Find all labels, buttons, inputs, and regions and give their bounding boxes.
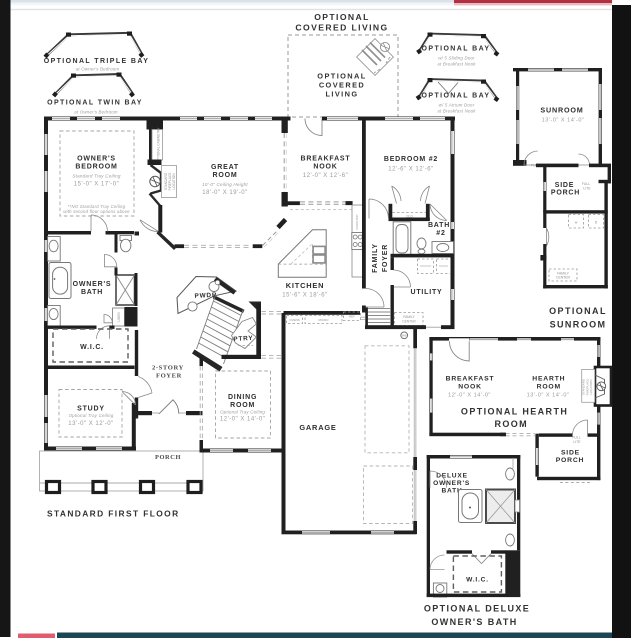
svg-text:BEDROOM: BEDROOM bbox=[75, 164, 117, 171]
svg-text:BREAKFAST: BREAKFAST bbox=[446, 376, 495, 383]
svg-text:with second floor options abov: with second floor options above bbox=[63, 209, 130, 214]
svg-text:OPTIONAL TWIN BAY: OPTIONAL TWIN BAY bbox=[47, 100, 143, 107]
svg-text:OWNER'S: OWNER'S bbox=[77, 156, 116, 163]
svg-text:COOKTOP: COOKTOP bbox=[355, 215, 359, 230]
svg-text:COVERED LIVING: COVERED LIVING bbox=[295, 23, 388, 33]
svg-text:OPTIONAL DELUXE: OPTIONAL DELUXE bbox=[424, 604, 530, 614]
svg-text:Optional Tray Ceiling: Optional Tray Ceiling bbox=[220, 410, 265, 415]
svg-text:18'-0" X 19'-0": 18'-0" X 19'-0" bbox=[202, 190, 247, 196]
svg-text:FOYER: FOYER bbox=[156, 373, 182, 380]
svg-text:10'-0" Ceiling Height: 10'-0" Ceiling Height bbox=[202, 182, 248, 187]
svg-text:2-STORY: 2-STORY bbox=[152, 365, 184, 372]
svg-text:GREAT: GREAT bbox=[211, 164, 239, 171]
svg-text:OPTIONAL HEARTH: OPTIONAL HEARTH bbox=[461, 407, 568, 417]
svg-text:OWNER'S: OWNER'S bbox=[433, 480, 470, 487]
svg-text:LOCATION: LOCATION bbox=[172, 173, 176, 190]
svg-text:REF: REF bbox=[349, 314, 355, 318]
svg-text:DELUXE: DELUXE bbox=[436, 473, 468, 480]
svg-text:BEDROOM #2: BEDROOM #2 bbox=[384, 156, 438, 163]
svg-text:DINING: DINING bbox=[228, 394, 257, 401]
svg-text:OWNER'S: OWNER'S bbox=[73, 281, 112, 288]
svg-text:Optional Tray Ceiling: Optional Tray Ceiling bbox=[69, 413, 114, 418]
svg-text:CENTER: CENTER bbox=[556, 276, 570, 280]
svg-text:OPTIONAL TRIPLE BAY: OPTIONAL TRIPLE BAY bbox=[44, 58, 150, 65]
svg-text:CENTER: CENTER bbox=[402, 319, 416, 323]
svg-text:w/ 5 Atrium Door: w/ 5 Atrium Door bbox=[439, 103, 475, 108]
svg-text:OPTIONAL BAY: OPTIONAL BAY bbox=[422, 93, 491, 100]
svg-text:UTILITY: UTILITY bbox=[410, 289, 442, 296]
svg-text:COVERED: COVERED bbox=[319, 81, 365, 90]
svg-text:w: w bbox=[575, 221, 578, 225]
svg-text:ROOM: ROOM bbox=[230, 402, 255, 409]
svg-text:at Owner's Bedroom: at Owner's Bedroom bbox=[76, 67, 120, 72]
svg-text:15'-0" X 17'-0": 15'-0" X 17'-0" bbox=[74, 182, 119, 188]
svg-text:LOCATION: LOCATION bbox=[589, 379, 593, 394]
svg-text:12'-0" X 14'-0": 12'-0" X 14'-0" bbox=[220, 417, 265, 423]
svg-text:PORCH: PORCH bbox=[556, 457, 585, 464]
svg-text:SIDE: SIDE bbox=[555, 182, 575, 189]
svg-text:HEARTH: HEARTH bbox=[532, 376, 565, 383]
svg-text:SUNROOM: SUNROOM bbox=[540, 106, 583, 115]
svg-text:ROOM: ROOM bbox=[537, 383, 561, 390]
svg-text:15'-6" X 18'-6": 15'-6" X 18'-6" bbox=[282, 293, 327, 299]
svg-text:OVENS: OVENS bbox=[289, 318, 300, 322]
svg-text:12'-0" X 14'-0": 12'-0" X 14'-0" bbox=[448, 393, 491, 399]
svg-text:OPTIONAL: OPTIONAL bbox=[317, 72, 366, 81]
svg-text:W.I.C.: W.I.C. bbox=[466, 577, 489, 584]
svg-text:LITE: LITE bbox=[573, 440, 581, 444]
svg-text:13'-0" X 12'-0": 13'-0" X 12'-0" bbox=[68, 421, 113, 427]
svg-text:LITE: LITE bbox=[583, 186, 591, 190]
svg-text:KITCHEN: KITCHEN bbox=[286, 281, 324, 290]
svg-text:SIDE: SIDE bbox=[561, 450, 580, 457]
svg-text:BREAKFAST: BREAKFAST bbox=[301, 156, 351, 163]
svg-text:OPTIONAL: OPTIONAL bbox=[314, 12, 370, 22]
svg-text:Standard Tray Ceiling: Standard Tray Ceiling bbox=[72, 174, 121, 179]
svg-text:D: D bbox=[595, 221, 598, 225]
svg-text:STANDARD FIRST FLOOR: STANDARD FIRST FLOOR bbox=[47, 509, 180, 519]
svg-text:at Owner's Bedroom: at Owner's Bedroom bbox=[74, 110, 118, 115]
svg-text:STUDY: STUDY bbox=[77, 406, 105, 413]
svg-text:BATH: BATH bbox=[428, 222, 450, 229]
svg-text:13'-0" X 14'-0": 13'-0" X 14'-0" bbox=[527, 393, 570, 399]
svg-text:w/ 5 Sliding Door: w/ 5 Sliding Door bbox=[438, 56, 475, 61]
svg-text:PTRY: PTRY bbox=[233, 335, 253, 343]
svg-text:LINEN: LINEN bbox=[117, 312, 121, 322]
svg-text:FOYER: FOYER bbox=[382, 244, 389, 272]
svg-text:at Breakfast Nook: at Breakfast Nook bbox=[437, 109, 476, 114]
svg-text:NOOK: NOOK bbox=[313, 164, 337, 171]
svg-text:M/B: M/B bbox=[402, 334, 407, 338]
svg-text:at Breakfast Nook: at Breakfast Nook bbox=[437, 62, 476, 67]
svg-text:MICRO: MICRO bbox=[319, 318, 330, 322]
svg-text:12'-0" X 12'-6": 12'-0" X 12'-6" bbox=[303, 173, 348, 179]
svg-text:SUNROOM: SUNROOM bbox=[550, 320, 607, 330]
svg-text:#2: #2 bbox=[436, 230, 445, 237]
svg-text:12'-6" X 12'-6": 12'-6" X 12'-6" bbox=[388, 167, 433, 173]
svg-text:OWNER'S BATH: OWNER'S BATH bbox=[431, 617, 517, 627]
svg-text:OPTIONAL CABINETRY: OPTIONAL CABINETRY bbox=[157, 127, 161, 163]
svg-text:PORCH: PORCH bbox=[155, 454, 181, 461]
svg-text:NOOK: NOOK bbox=[458, 383, 482, 390]
svg-text:13'-0" X 14'-0": 13'-0" X 14'-0" bbox=[542, 118, 585, 124]
svg-text:ROOM: ROOM bbox=[213, 172, 238, 179]
svg-text:OPTIONAL BAY: OPTIONAL BAY bbox=[422, 46, 491, 53]
svg-text:W.I.C.: W.I.C. bbox=[80, 344, 104, 351]
svg-text:LIVING: LIVING bbox=[325, 90, 358, 99]
svg-text:FULL: FULL bbox=[582, 182, 590, 186]
svg-text:GARAGE: GARAGE bbox=[299, 423, 336, 432]
svg-text:OPTIONAL: OPTIONAL bbox=[549, 306, 607, 316]
svg-text:FAMILY: FAMILY bbox=[372, 243, 379, 273]
svg-text:ROOM: ROOM bbox=[494, 419, 528, 429]
svg-text:PORCH: PORCH bbox=[551, 189, 580, 196]
svg-text:BATH: BATH bbox=[81, 289, 103, 296]
svg-text:FULL: FULL bbox=[572, 436, 580, 440]
